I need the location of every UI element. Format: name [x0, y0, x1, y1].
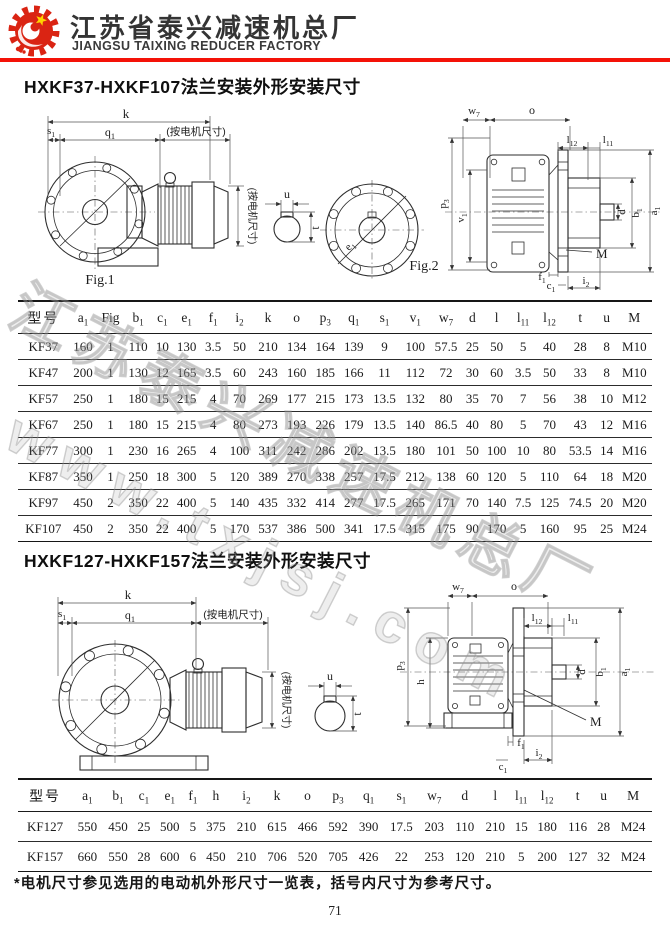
value-cell: 56 — [535, 386, 564, 412]
value-cell: M12 — [617, 386, 652, 412]
front-motor-view — [52, 640, 262, 770]
value-cell: 90 — [462, 516, 482, 542]
value-cell: 170 — [225, 516, 254, 542]
value-cell: 120 — [450, 842, 481, 872]
column-header: p3 — [323, 779, 354, 812]
dim-label-l12: l12 — [532, 612, 543, 626]
table-row: KF97450235022400514043533241427717.52651… — [18, 490, 652, 516]
table-header-row: 型号a1Figb1c1e1f1i2kop3q1s1v1w7dll11l12tuM — [18, 301, 652, 334]
value-cell: 226 — [311, 412, 340, 438]
value-cell: 86.5 — [430, 412, 463, 438]
column-header: q1 — [353, 779, 384, 812]
value-cell: 1 — [97, 464, 124, 490]
model-cell: KF47 — [18, 360, 69, 386]
motor-size-note-h: (按电机尺寸) — [203, 608, 263, 621]
value-cell: 520 — [292, 842, 323, 872]
value-cell: 80 — [482, 412, 511, 438]
value-cell: 265 — [401, 490, 430, 516]
value-cell: 215 — [172, 412, 201, 438]
column-header: b1 — [103, 779, 134, 812]
value-cell: 28 — [593, 812, 614, 842]
value-cell: 13.5 — [368, 438, 401, 464]
value-cell: 12 — [597, 412, 617, 438]
value-cell: 300 — [69, 438, 98, 464]
table-header-row: 型号a1b1c1e1f1hi2kop3q1s1w7dll11l12tuM — [18, 779, 652, 812]
logo-dot — [29, 53, 31, 55]
value-cell: 203 — [419, 812, 450, 842]
value-cell: 28 — [564, 334, 597, 360]
value-cell: 210 — [231, 842, 262, 872]
technical-drawing-1: k s1 q1 (按电机尺寸) (按电机尺寸) Fig.1 u t — [0, 100, 670, 296]
housing-fins — [492, 190, 544, 232]
column-header: f1 — [185, 779, 201, 812]
column-header: v1 — [401, 301, 430, 334]
page-number: 71 — [0, 903, 670, 919]
section2-title: HXKF127-HXKF157法兰安装外形安装尺寸 — [24, 548, 371, 573]
column-header: d — [462, 301, 482, 334]
column-header: f1 — [201, 301, 225, 334]
column-header: u — [597, 301, 617, 334]
value-cell: 140 — [401, 412, 430, 438]
column-header: w7 — [419, 779, 450, 812]
value-cell: 50 — [225, 334, 254, 360]
value-cell: 15 — [152, 412, 172, 438]
model-cell: KF127 — [18, 812, 72, 842]
value-cell: 450 — [103, 812, 134, 842]
value-cell: 72 — [430, 360, 463, 386]
value-cell: 3.5 — [511, 360, 535, 386]
value-cell: 13.5 — [368, 412, 401, 438]
shaft-section-view: u t — [265, 187, 322, 242]
value-cell: 202 — [340, 438, 369, 464]
column-header: b1 — [124, 301, 153, 334]
value-cell: 17.5 — [368, 464, 401, 490]
dim-label-M: M — [596, 246, 608, 261]
value-cell: 140 — [225, 490, 254, 516]
column-header: e1 — [155, 779, 186, 812]
value-cell: 242 — [282, 438, 311, 464]
side-section-view — [400, 608, 655, 736]
column-header: Fig — [97, 301, 124, 334]
value-cell: 3.5 — [201, 360, 225, 386]
column-header: 型号 — [18, 779, 72, 812]
value-cell: 32 — [593, 842, 614, 872]
value-cell: 200 — [69, 360, 98, 386]
dim-label-d: d — [616, 209, 628, 215]
value-cell: 180 — [124, 412, 153, 438]
value-cell: 22 — [152, 490, 172, 516]
value-cell: 100 — [401, 334, 430, 360]
value-cell: 705 — [323, 842, 354, 872]
value-cell: 139 — [340, 334, 369, 360]
value-cell: 132 — [401, 386, 430, 412]
value-cell: 138 — [430, 464, 463, 490]
value-cell: 177 — [282, 386, 311, 412]
value-cell: 1 — [97, 412, 124, 438]
dim-label-c1: c1 — [499, 761, 508, 775]
value-cell: 450 — [69, 490, 98, 516]
value-cell: 166 — [340, 360, 369, 386]
value-cell: M20 — [617, 490, 652, 516]
value-cell: 127 — [562, 842, 593, 872]
value-cell: 537 — [254, 516, 283, 542]
value-cell: 215 — [311, 386, 340, 412]
model-cell: KF67 — [18, 412, 69, 438]
value-cell: 250 — [69, 386, 98, 412]
column-header: o — [292, 779, 323, 812]
value-cell: 70 — [462, 490, 482, 516]
value-cell: 4 — [201, 438, 225, 464]
value-cell: 22 — [152, 516, 172, 542]
value-cell: 315 — [401, 516, 430, 542]
motor-size-note-v: (按电机尺寸) — [280, 672, 293, 729]
value-cell: 5 — [511, 464, 535, 490]
value-cell: 1 — [97, 438, 124, 464]
table-row: KF77300123016265410031124228620213.51801… — [18, 438, 652, 464]
dim-label-t: t — [350, 712, 364, 716]
value-cell: 300 — [172, 464, 201, 490]
value-cell: 15 — [511, 812, 532, 842]
value-cell: 389 — [254, 464, 283, 490]
dim-label-i2: i2 — [583, 275, 590, 289]
fig1-caption: Fig.1 — [85, 273, 114, 288]
column-header: q1 — [340, 301, 369, 334]
value-cell: 175 — [430, 516, 463, 542]
model-cell: KF157 — [18, 842, 72, 872]
column-header: o — [282, 301, 311, 334]
value-cell: 386 — [282, 516, 311, 542]
motor-fins — [189, 672, 217, 728]
technical-drawing-2: k s1 q1 (按电机尺寸) (按电机尺寸) u t — [0, 578, 670, 776]
value-cell: 110 — [450, 812, 481, 842]
value-cell: 210 — [480, 812, 511, 842]
value-cell: 50 — [482, 334, 511, 360]
dim-label-h: h — [415, 679, 427, 685]
value-cell: 160 — [535, 516, 564, 542]
dim-label-p3: p3 — [437, 199, 451, 209]
dim-label-l11: l11 — [603, 134, 614, 148]
dim-label-f1: f1 — [538, 271, 546, 285]
value-cell: 134 — [282, 334, 311, 360]
value-cell: 164 — [311, 334, 340, 360]
dim-label-w7: w7 — [452, 581, 464, 595]
value-cell: 17.5 — [368, 490, 401, 516]
value-cell: 18 — [597, 464, 617, 490]
value-cell: 1 — [97, 360, 124, 386]
value-cell: 60 — [482, 360, 511, 386]
value-cell: 414 — [311, 490, 340, 516]
motor-fins — [161, 186, 189, 244]
value-cell: 350 — [124, 516, 153, 542]
value-cell: 110 — [124, 334, 153, 360]
dimension-table-1: 型号a1Figb1c1e1f1i2kop3q1s1v1w7dll11l12tuM… — [18, 300, 652, 542]
column-header: l11 — [511, 301, 535, 334]
value-cell: 22 — [384, 842, 419, 872]
model-cell: KF107 — [18, 516, 69, 542]
value-cell: 2 — [97, 490, 124, 516]
value-cell: 173 — [340, 386, 369, 412]
value-cell: 20 — [597, 490, 617, 516]
value-cell: 5 — [201, 516, 225, 542]
value-cell: 270 — [282, 464, 311, 490]
value-cell: 2 — [97, 516, 124, 542]
fig2-caption: Fig.2 — [409, 259, 438, 274]
value-cell: 35 — [462, 386, 482, 412]
column-header: k — [262, 779, 293, 812]
value-cell: 171 — [430, 490, 463, 516]
value-cell: M10 — [617, 334, 652, 360]
value-cell: 3.5 — [201, 334, 225, 360]
value-cell: 18 — [152, 464, 172, 490]
value-cell: 70 — [225, 386, 254, 412]
dim-label-v1: v1 — [455, 213, 469, 223]
value-cell: 269 — [254, 386, 283, 412]
dim-label-p3: p3 — [393, 661, 407, 671]
value-cell: 230 — [124, 438, 153, 464]
value-cell: 210 — [231, 812, 262, 842]
column-header: t — [562, 779, 593, 812]
value-cell: 12 — [152, 360, 172, 386]
motor-size-note-v: (按电机尺寸) — [246, 188, 259, 245]
value-cell: 400 — [172, 490, 201, 516]
column-header: l — [480, 779, 511, 812]
header-rule — [0, 58, 670, 62]
value-cell: 64 — [564, 464, 597, 490]
value-cell: 5 — [201, 464, 225, 490]
model-cell: KF87 — [18, 464, 69, 490]
value-cell: 53.5 — [564, 438, 597, 464]
fig1-dimensions: k s1 q1 (按电机尺寸) (按电机尺寸) Fig.1 — [47, 106, 259, 288]
value-cell: 40 — [462, 412, 482, 438]
column-header: l11 — [511, 779, 532, 812]
value-cell: 80 — [430, 386, 463, 412]
dim-label-o: o — [529, 103, 535, 117]
value-cell: 180 — [401, 438, 430, 464]
value-cell: 5 — [511, 334, 535, 360]
fig2-flange-view: e1 Fig.2 — [320, 180, 439, 280]
value-cell: 50 — [462, 438, 482, 464]
value-cell: 80 — [535, 438, 564, 464]
value-cell: 130 — [172, 334, 201, 360]
value-cell: 466 — [292, 812, 323, 842]
value-cell: 375 — [201, 812, 232, 842]
value-cell: 660 — [72, 842, 103, 872]
value-cell: 6 — [185, 842, 201, 872]
model-cell: KF77 — [18, 438, 69, 464]
value-cell: 160 — [282, 360, 311, 386]
page-header: 江苏省泰兴减速机总厂 JIANGSU TAIXING REDUCER FACTO… — [0, 0, 670, 58]
column-header: a1 — [69, 301, 98, 334]
column-header: l12 — [532, 779, 563, 812]
value-cell: 60 — [462, 464, 482, 490]
dim-label-u: u — [284, 187, 290, 201]
value-cell: 179 — [340, 412, 369, 438]
value-cell: 390 — [353, 812, 384, 842]
column-header: c1 — [152, 301, 172, 334]
dim-label-s1: s1 — [47, 125, 55, 139]
factory-gear-logo — [8, 3, 62, 57]
value-cell: 210 — [254, 334, 283, 360]
table-row: KF371601110101303.550210134164139910057.… — [18, 334, 652, 360]
value-cell: 16 — [152, 438, 172, 464]
factory-name-en: JIANGSU TAIXING REDUCER FACTORY — [72, 39, 321, 53]
value-cell: 60 — [225, 360, 254, 386]
model-cell: KF37 — [18, 334, 69, 360]
value-cell: 120 — [225, 464, 254, 490]
column-header: l — [482, 301, 511, 334]
value-cell: 110 — [535, 464, 564, 490]
value-cell: 1 — [97, 386, 124, 412]
value-cell: 193 — [282, 412, 311, 438]
value-cell: 615 — [262, 812, 293, 842]
value-cell: 80 — [225, 412, 254, 438]
value-cell: 5 — [185, 812, 201, 842]
value-cell: 450 — [201, 842, 232, 872]
value-cell: 165 — [172, 360, 201, 386]
dim-label-l11: l11 — [568, 612, 579, 626]
column-header: c1 — [133, 779, 154, 812]
value-cell: 50 — [535, 360, 564, 386]
dim-label-q1: q1 — [125, 608, 135, 624]
value-cell: 30 — [462, 360, 482, 386]
value-cell: 500 — [155, 812, 186, 842]
value-cell: 265 — [172, 438, 201, 464]
value-cell: 592 — [323, 812, 354, 842]
value-cell: 180 — [532, 812, 563, 842]
dim-label-t: t — [308, 226, 322, 230]
column-header: d — [450, 779, 481, 812]
value-cell: 338 — [311, 464, 340, 490]
value-cell: 426 — [353, 842, 384, 872]
dim-label-k: k — [123, 106, 130, 121]
table-row: KF6725011801521548027319322617913.514086… — [18, 412, 652, 438]
dim-label-w7: w7 — [468, 105, 480, 119]
column-header: k — [254, 301, 283, 334]
value-cell: 450 — [69, 516, 98, 542]
section1-title: HXKF37-HXKF107法兰安装外形安装尺寸 — [24, 74, 361, 99]
value-cell: 257 — [340, 464, 369, 490]
value-cell: 435 — [254, 490, 283, 516]
value-cell: 120 — [482, 464, 511, 490]
value-cell: 1 — [97, 334, 124, 360]
value-cell: 4 — [201, 386, 225, 412]
table-row: KF15766055028600645021070652070542622253… — [18, 842, 652, 872]
column-header: u — [593, 779, 614, 812]
value-cell: 112 — [401, 360, 430, 386]
value-cell: 350 — [69, 464, 98, 490]
value-cell: 25 — [597, 516, 617, 542]
logo-swirl-dot — [31, 23, 40, 32]
dim-label-q1: q1 — [105, 125, 115, 141]
value-cell: 250 — [69, 412, 98, 438]
value-cell: 200 — [532, 842, 563, 872]
value-cell: 8 — [597, 360, 617, 386]
column-header: i2 — [231, 779, 262, 812]
table-row: KF87350125018300512038927033825717.52121… — [18, 464, 652, 490]
value-cell: 140 — [482, 490, 511, 516]
value-cell: 28 — [133, 842, 154, 872]
value-cell: 550 — [103, 842, 134, 872]
value-cell: 8 — [597, 334, 617, 360]
footnote: *电机尺寸参见选用的电动机外形尺寸一览表，括号内尺寸为参考尺寸。 — [14, 872, 501, 893]
value-cell: 100 — [225, 438, 254, 464]
value-cell: M24 — [614, 812, 652, 842]
value-cell: 11 — [368, 360, 401, 386]
value-cell: 277 — [340, 490, 369, 516]
lifting-eye — [193, 659, 204, 670]
value-cell: 43 — [564, 412, 597, 438]
column-header: M — [614, 779, 652, 812]
column-header: 型号 — [18, 301, 69, 334]
value-cell: 14 — [597, 438, 617, 464]
value-cell: 185 — [311, 360, 340, 386]
value-cell: 4 — [201, 412, 225, 438]
column-header: l12 — [535, 301, 564, 334]
value-cell: 5 — [511, 516, 535, 542]
value-cell: 33 — [564, 360, 597, 386]
model-cell: KF97 — [18, 490, 69, 516]
dim-label-u: u — [327, 669, 333, 683]
value-cell: 101 — [430, 438, 463, 464]
logo-dot — [22, 50, 25, 53]
value-cell: 600 — [155, 842, 186, 872]
dim-label-e1: e1 — [343, 238, 359, 254]
value-cell: 100 — [482, 438, 511, 464]
value-cell: M24 — [617, 516, 652, 542]
value-cell: 130 — [124, 360, 153, 386]
dim-label-c1: c1 — [547, 280, 556, 294]
value-cell: 17.5 — [384, 812, 419, 842]
value-cell: 311 — [254, 438, 283, 464]
table-row: KF12755045025500537521061546659239017.52… — [18, 812, 652, 842]
value-cell: 70 — [535, 412, 564, 438]
dim-label-k: k — [125, 587, 132, 602]
value-cell: 243 — [254, 360, 283, 386]
column-header: w7 — [430, 301, 463, 334]
column-header: t — [564, 301, 597, 334]
value-cell: 116 — [562, 812, 593, 842]
housing-fins — [453, 656, 503, 691]
value-cell: 286 — [311, 438, 340, 464]
value-cell: 5 — [201, 490, 225, 516]
value-cell: 253 — [419, 842, 450, 872]
value-cell: 125 — [535, 490, 564, 516]
value-cell: 170 — [482, 516, 511, 542]
lifting-eye — [165, 173, 176, 184]
dimension-table-2: 型号a1b1c1e1f1hi2kop3q1s1w7dll11l12tuM KF1… — [18, 778, 652, 872]
value-cell: 550 — [72, 812, 103, 842]
value-cell: 332 — [282, 490, 311, 516]
value-cell: 70 — [482, 386, 511, 412]
value-cell: 400 — [172, 516, 201, 542]
value-cell: M24 — [614, 842, 652, 872]
value-cell: 95 — [564, 516, 597, 542]
value-cell: 25 — [462, 334, 482, 360]
catalog-page: 江苏省泰兴减速机总厂 JIANGSU TAIXING REDUCER FACTO… — [0, 0, 670, 936]
value-cell: 500 — [311, 516, 340, 542]
column-header: e1 — [172, 301, 201, 334]
value-cell: 212 — [401, 464, 430, 490]
dim-label-M: M — [590, 714, 602, 729]
value-cell: 10 — [597, 386, 617, 412]
value-cell: 341 — [340, 516, 369, 542]
value-cell: 350 — [124, 490, 153, 516]
logo-dot — [16, 47, 20, 51]
value-cell: 10 — [511, 438, 535, 464]
value-cell: 9 — [368, 334, 401, 360]
dim-label-d: d — [576, 669, 588, 675]
value-cell: 15 — [152, 386, 172, 412]
